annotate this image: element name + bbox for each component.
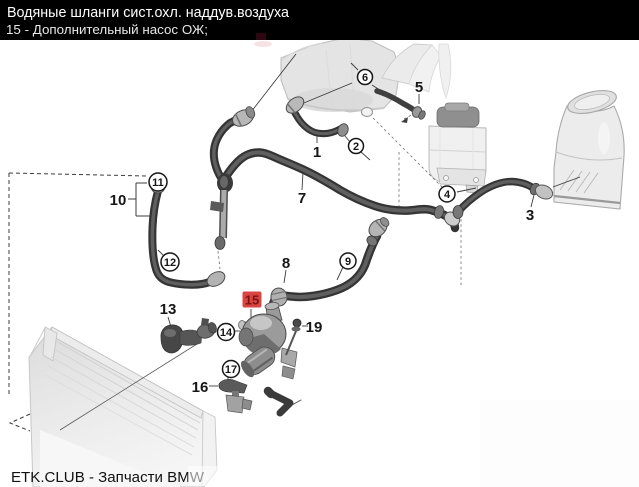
svg-text:19: 19: [306, 319, 323, 336]
svg-text:5: 5: [415, 79, 423, 96]
svg-text:17: 17: [225, 364, 237, 376]
svg-text:11: 11: [152, 177, 164, 189]
svg-text:8: 8: [282, 255, 290, 272]
svg-text:6: 6: [362, 72, 368, 84]
svg-text:10: 10: [110, 192, 127, 209]
svg-text:13: 13: [160, 301, 177, 318]
svg-text:15: 15: [245, 293, 259, 308]
svg-text:ETK.CLUB - Запчасти BMW: ETK.CLUB - Запчасти BMW: [11, 470, 204, 486]
svg-text:1: 1: [313, 144, 321, 161]
svg-text:14: 14: [220, 327, 233, 339]
svg-text:2: 2: [353, 141, 359, 153]
svg-text:9: 9: [345, 256, 351, 268]
svg-text:4: 4: [444, 189, 451, 201]
svg-text:7: 7: [298, 190, 306, 207]
svg-text:Водяные шланги сист.охл. надду: Водяные шланги сист.охл. наддув.воздуха: [7, 4, 290, 21]
svg-text:12: 12: [164, 257, 176, 269]
svg-text:15 - Дополнительный насос ОЖ;: 15 - Дополнительный насос ОЖ;: [6, 23, 208, 37]
svg-text:16: 16: [192, 379, 209, 396]
svg-text:3: 3: [526, 207, 534, 224]
